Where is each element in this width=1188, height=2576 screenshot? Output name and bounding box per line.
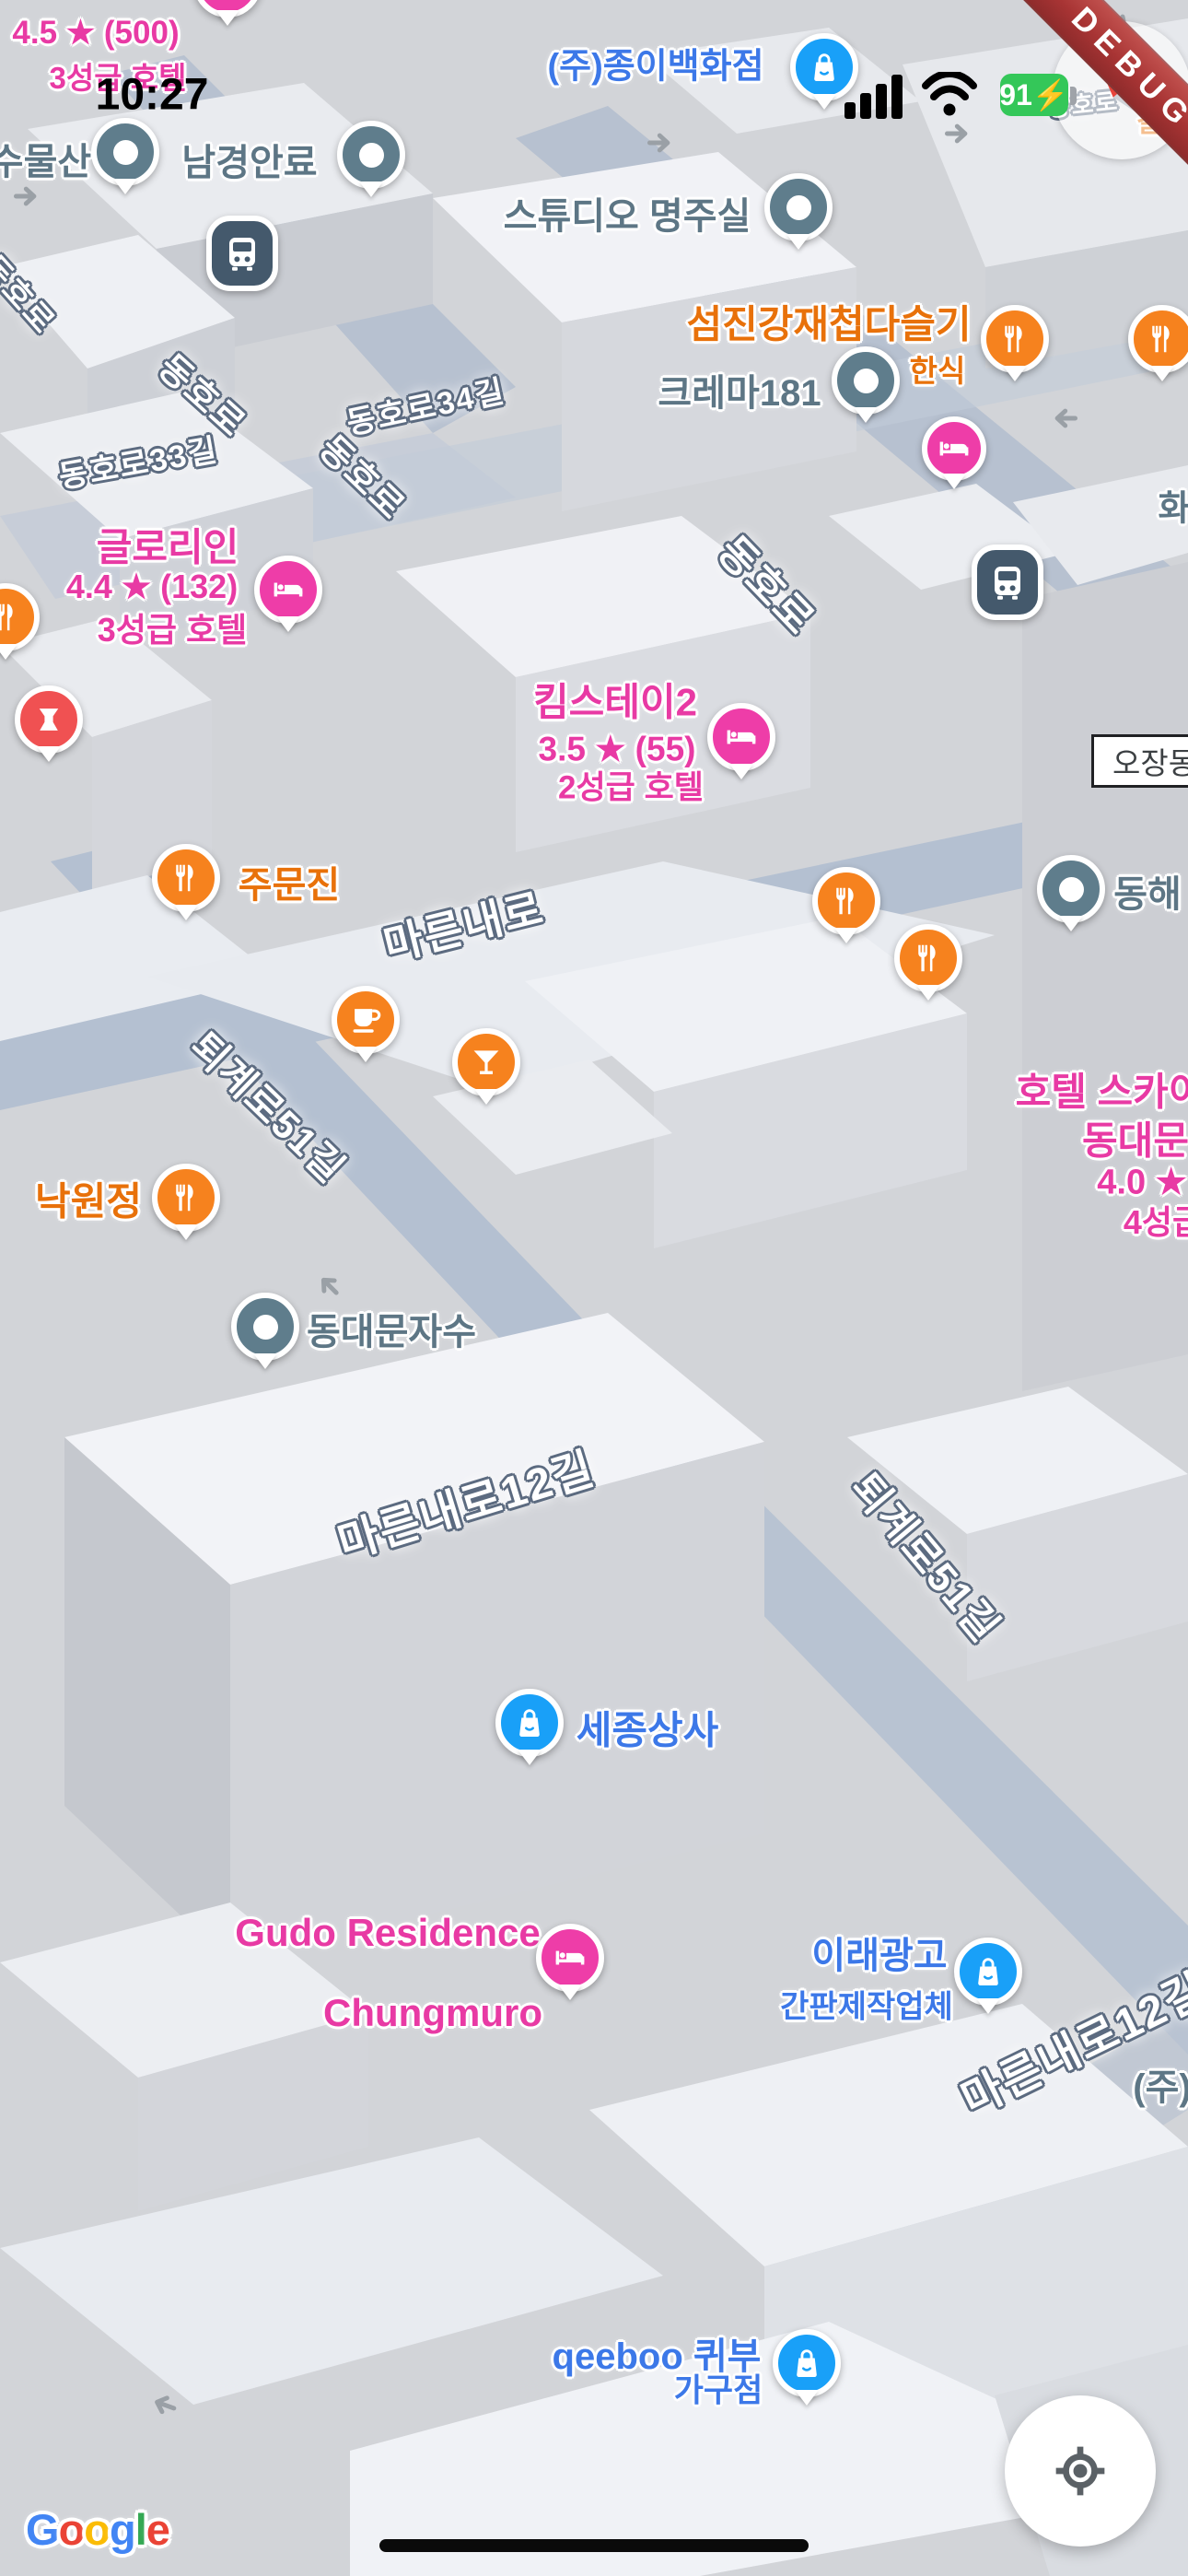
shopping-bag-icon	[789, 2346, 824, 2381]
poi-category-seomjingang[interactable]: 한식	[910, 346, 966, 391]
poi-category-qeeboo[interactable]: 가구점	[674, 2365, 763, 2412]
poi-label-gudo-line1[interactable]: Gudo Residence	[235, 1911, 540, 1955]
poi-label-jumunjin[interactable]: 주문진	[239, 855, 340, 908]
battery-percent: 91⚡	[999, 77, 1068, 112]
bed-icon	[271, 572, 306, 607]
fork-knife-icon	[169, 861, 204, 896]
my-location-button[interactable]	[1005, 2395, 1156, 2547]
fork-knife-icon	[0, 600, 23, 635]
poi-label-nakwonjeong[interactable]: 낙원정	[35, 1171, 142, 1227]
cellular-signal-icon	[844, 75, 903, 119]
google-logo-letter: G	[26, 2505, 59, 2554]
shopping-bag-icon	[807, 50, 842, 85]
status-time: 10:27	[96, 70, 209, 121]
poi-label-irae[interactable]: 이래광고	[811, 1926, 947, 1979]
place-pin[interactable]	[337, 121, 405, 189]
shopping-bag-icon	[512, 1705, 547, 1740]
map-screen[interactable]: 동호로 동호로 동호로33길 동호로34길 동호로 동호로 동호로 마른내로 퇴…	[0, 0, 1188, 2576]
poi-category-hotel-sky[interactable]: 4성급	[1124, 1196, 1188, 1244]
poi-label-hotel-sky-line2[interactable]: 동대문	[1082, 1110, 1188, 1166]
poi-label-sumulsan[interactable]: 수물산	[0, 132, 91, 185]
poi-label-dongdaemun-jasu[interactable]: 동대문자수	[307, 1302, 476, 1355]
bed-icon	[937, 431, 972, 466]
restaurant-pin[interactable]	[1128, 305, 1188, 373]
fork-knife-icon	[911, 941, 946, 976]
poi-label-ju[interactable]: (주)	[1133, 2057, 1188, 2111]
restaurant-pin[interactable]	[812, 867, 880, 935]
hotel-pin[interactable]	[536, 1924, 604, 1992]
home-indicator[interactable]	[379, 2539, 809, 2552]
poi-category-kimstay[interactable]: 2성급 호텔	[558, 762, 704, 809]
restaurant-pin[interactable]	[152, 1164, 220, 1232]
fork-knife-icon	[169, 1180, 204, 1215]
bus-icon	[220, 231, 264, 275]
fork-knife-icon	[1145, 322, 1180, 357]
bed-icon	[724, 720, 759, 755]
area-box-label-ojangdong[interactable]: 오장동사	[1091, 734, 1188, 788]
google-logo-letter: g	[110, 2505, 135, 2554]
restaurant-pin[interactable]	[894, 924, 962, 992]
place-pin[interactable]	[832, 346, 900, 415]
bus-icon	[985, 560, 1030, 604]
bus-stop-pin[interactable]	[972, 544, 1043, 620]
place-pin[interactable]	[764, 173, 833, 241]
hotel-pin[interactable]	[707, 703, 775, 771]
shopping-pin[interactable]	[773, 2329, 841, 2397]
restaurant-pin[interactable]	[152, 844, 220, 912]
fork-knife-icon	[997, 322, 1032, 357]
direction-arrow-icon	[13, 184, 41, 208]
poi-category-irae[interactable]: 간판제작업체	[780, 1982, 953, 2027]
shopping-pin[interactable]	[954, 1938, 1022, 2006]
bed-icon	[553, 1940, 588, 1975]
bar-pin[interactable]	[452, 1028, 520, 1096]
direction-arrow-icon	[944, 122, 972, 146]
poi-label-jongi-department[interactable]: (주)종이백화점	[547, 38, 763, 88]
coffee-cup-icon	[348, 1002, 383, 1037]
shopping-bag-icon	[971, 1954, 1006, 1989]
restaurant-pin[interactable]	[981, 305, 1049, 373]
cocktail-icon	[469, 1045, 504, 1080]
poi-category-gloryin[interactable]: 3성급 호텔	[98, 603, 248, 651]
area-box-text: 오장동사	[1112, 739, 1188, 783]
hotel-pin[interactable]	[922, 416, 986, 481]
poi-label-studio[interactable]: 스튜디오 명주실	[504, 186, 751, 240]
poi-label-crema[interactable]: 크레마181	[658, 363, 821, 416]
direction-arrow-icon	[646, 131, 674, 155]
hotel-pin[interactable]	[254, 556, 322, 624]
google-logo: Google	[26, 2504, 169, 2555]
battery-nub	[1070, 87, 1077, 105]
poi-label-kimstay[interactable]: 킴스테이2	[533, 672, 697, 728]
google-logo-letter: o	[59, 2505, 85, 2554]
wifi-icon	[922, 72, 977, 116]
herbal-medicine-pin[interactable]	[15, 685, 83, 754]
crosshair-icon	[1052, 2442, 1109, 2500]
bus-stop-pin[interactable]	[206, 216, 278, 291]
place-pin[interactable]	[1037, 855, 1105, 923]
bed-icon	[210, 0, 245, 1]
poi-label-donghae[interactable]: 동해	[1113, 864, 1182, 918]
poi-rating-gloryin[interactable]: 4.4 ★ (132)	[66, 568, 238, 606]
battery-indicator: 91⚡	[1000, 74, 1068, 116]
google-logo-letter: o	[84, 2505, 110, 2554]
google-logo-letter: l	[135, 2505, 146, 2554]
poi-label-seomjingang[interactable]: 섬진강재첩다슬기	[686, 294, 971, 350]
google-logo-letter: e	[146, 2505, 169, 2554]
poi-label-gudo-line2[interactable]: Chungmuro	[323, 1991, 542, 2035]
poi-label-hotel-sky[interactable]: 호텔 스카이	[1016, 1061, 1188, 1118]
poi-label-namgyeong[interactable]: 남경안료	[181, 133, 317, 186]
poi-label-sejong[interactable]: 세종상사	[577, 1700, 719, 1756]
fork-knife-icon	[829, 884, 864, 919]
poi-label-gloryin[interactable]: 글로리인	[97, 517, 239, 573]
mortar-icon	[31, 702, 66, 737]
shopping-pin[interactable]	[495, 1689, 564, 1757]
direction-arrow-icon	[1051, 406, 1078, 430]
poi-label-hwa[interactable]: 화	[1159, 480, 1188, 531]
place-pin[interactable]	[91, 118, 159, 186]
place-pin[interactable]	[231, 1293, 299, 1361]
cafe-pin[interactable]	[332, 986, 400, 1054]
hotel-rating[interactable]: 4.5 ★ (500)	[12, 15, 179, 52]
